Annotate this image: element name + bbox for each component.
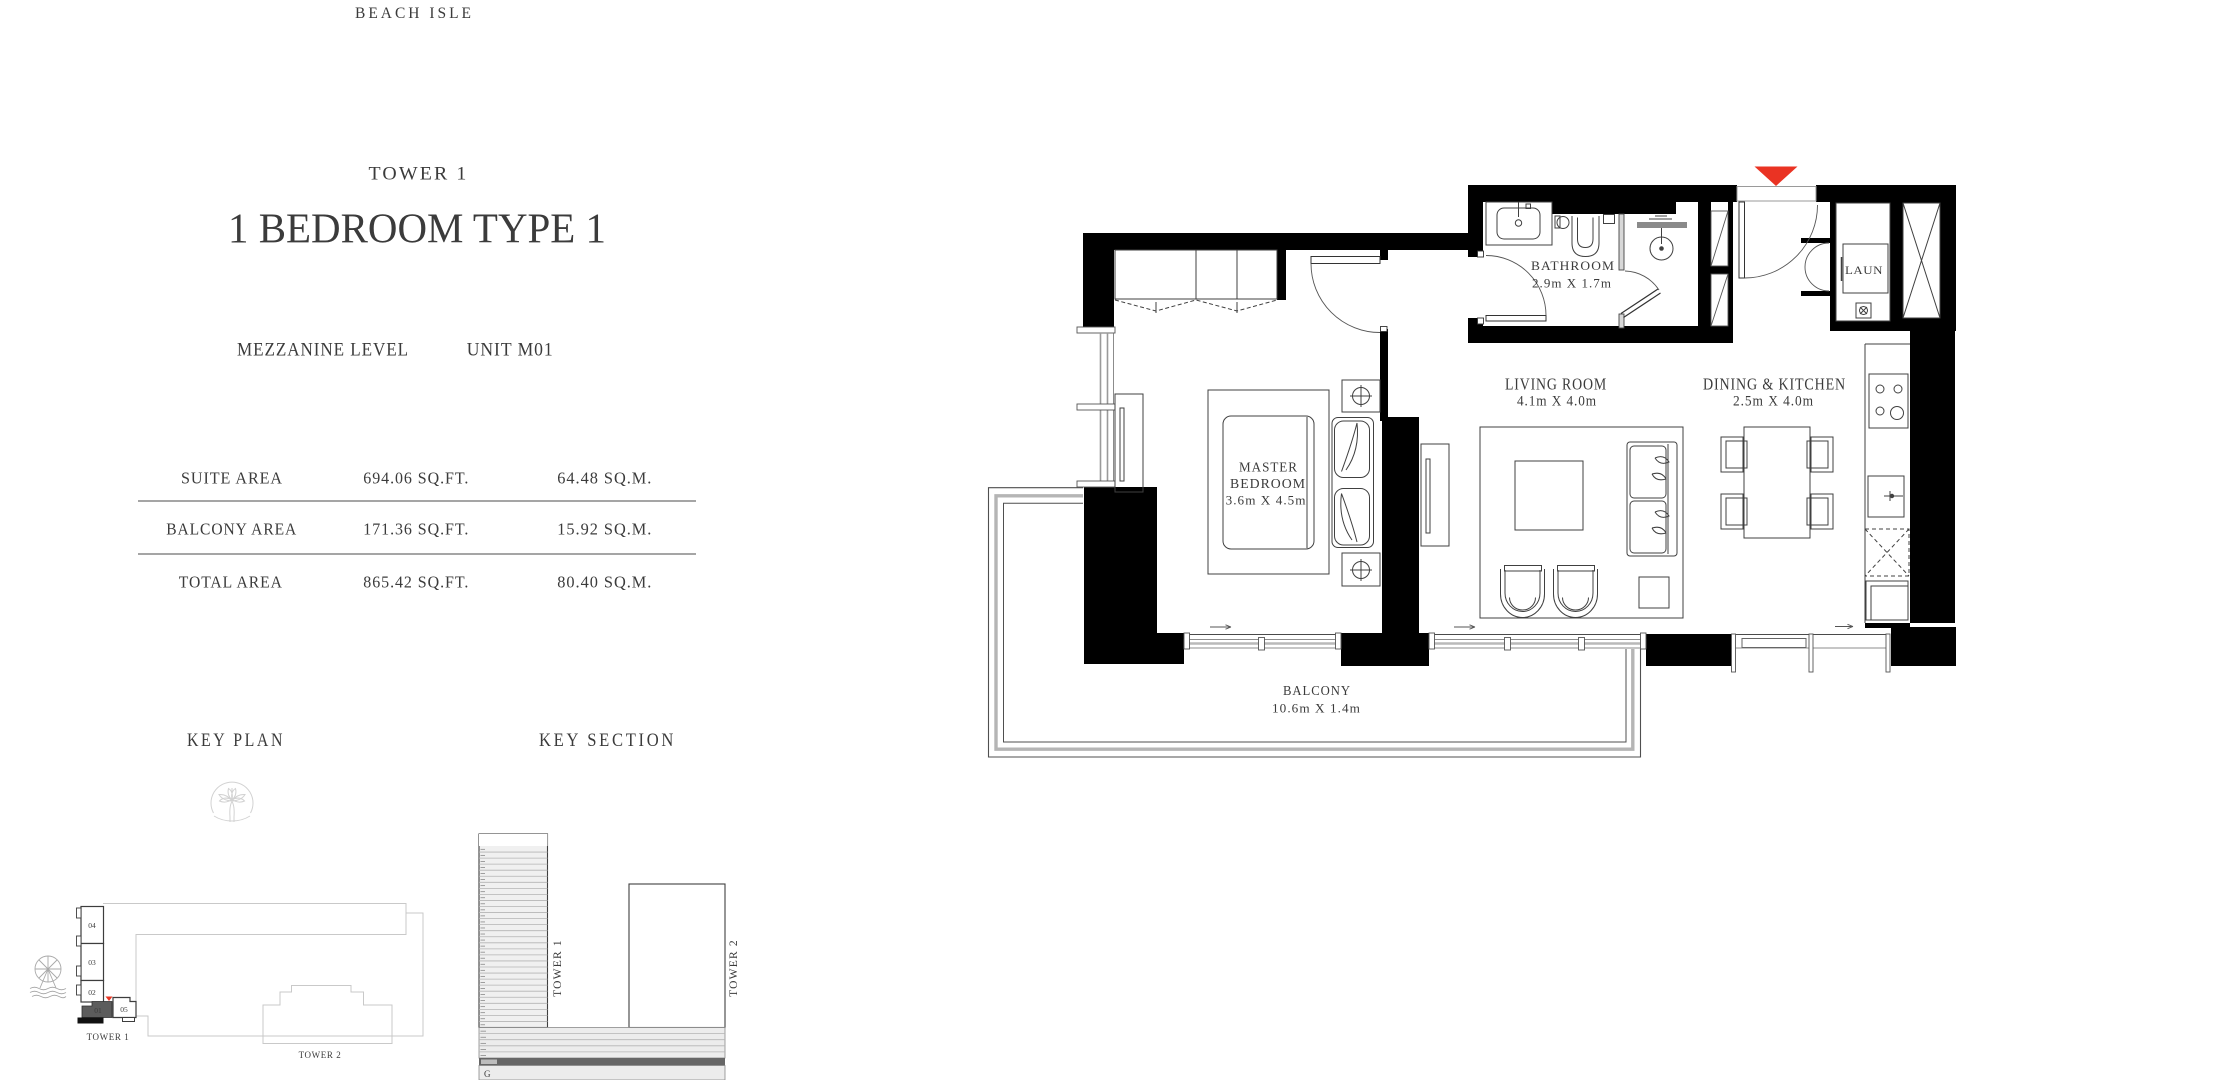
svg-text:865.42 SQ.FT.: 865.42 SQ.FT. xyxy=(363,573,469,592)
svg-text:UNIT M01: UNIT M01 xyxy=(467,341,554,361)
svg-text:04: 04 xyxy=(88,921,96,930)
svg-text:TOWER 1: TOWER 1 xyxy=(87,1032,130,1042)
svg-text:BATHROOM: BATHROOM xyxy=(1531,259,1615,273)
svg-text:05: 05 xyxy=(120,1005,128,1014)
svg-text:03: 03 xyxy=(88,958,96,967)
svg-text:TOWER 2: TOWER 2 xyxy=(728,939,740,997)
svg-text:KEY SECTION: KEY SECTION xyxy=(539,731,676,751)
svg-text:BALCONY AREA: BALCONY AREA xyxy=(166,520,297,539)
svg-text:TOWER 1: TOWER 1 xyxy=(552,939,564,997)
svg-text:TOWER 2: TOWER 2 xyxy=(299,1050,342,1060)
svg-text:4.1m X 4.0m: 4.1m X 4.0m xyxy=(1517,394,1597,410)
svg-text:G: G xyxy=(484,1069,491,1079)
svg-text:DINING & KITCHEN: DINING & KITCHEN xyxy=(1703,375,1846,394)
svg-text:3.6m X 4.5m: 3.6m X 4.5m xyxy=(1226,494,1307,508)
svg-text:SUITE AREA: SUITE AREA xyxy=(181,469,283,488)
svg-text:64.48 SQ.M.: 64.48 SQ.M. xyxy=(557,469,652,488)
svg-text:01: 01 xyxy=(94,1006,102,1015)
svg-text:2.9m X 1.7m: 2.9m X 1.7m xyxy=(1532,277,1612,291)
svg-text:BEACH ISLE: BEACH ISLE xyxy=(355,5,474,22)
svg-text:MEZZANINE LEVEL: MEZZANINE LEVEL xyxy=(237,341,409,361)
svg-text:10.6m X 1.4m: 10.6m X 1.4m xyxy=(1272,702,1361,716)
svg-text:MASTER: MASTER xyxy=(1239,460,1298,475)
svg-text:80.40 SQ.M.: 80.40 SQ.M. xyxy=(557,573,652,592)
svg-text:BEDROOM: BEDROOM xyxy=(1230,476,1306,491)
svg-text:TOTAL AREA: TOTAL AREA xyxy=(179,573,283,592)
svg-text:BALCONY: BALCONY xyxy=(1283,683,1351,698)
svg-text:02: 02 xyxy=(88,988,96,997)
svg-text:LIVING ROOM: LIVING ROOM xyxy=(1505,375,1607,394)
svg-text:694.06 SQ.FT.: 694.06 SQ.FT. xyxy=(363,469,469,488)
svg-text:2.5m X 4.0m: 2.5m X 4.0m xyxy=(1733,394,1814,410)
svg-text:1 BEDROOM TYPE 1: 1 BEDROOM TYPE 1 xyxy=(228,207,606,253)
svg-text:TOWER 1: TOWER 1 xyxy=(369,165,469,185)
svg-text:15.92 SQ.M.: 15.92 SQ.M. xyxy=(557,520,652,539)
svg-text:LAUN: LAUN xyxy=(1845,265,1883,277)
svg-text:171.36 SQ.FT.: 171.36 SQ.FT. xyxy=(363,520,469,539)
svg-text:KEY PLAN: KEY PLAN xyxy=(187,731,285,751)
